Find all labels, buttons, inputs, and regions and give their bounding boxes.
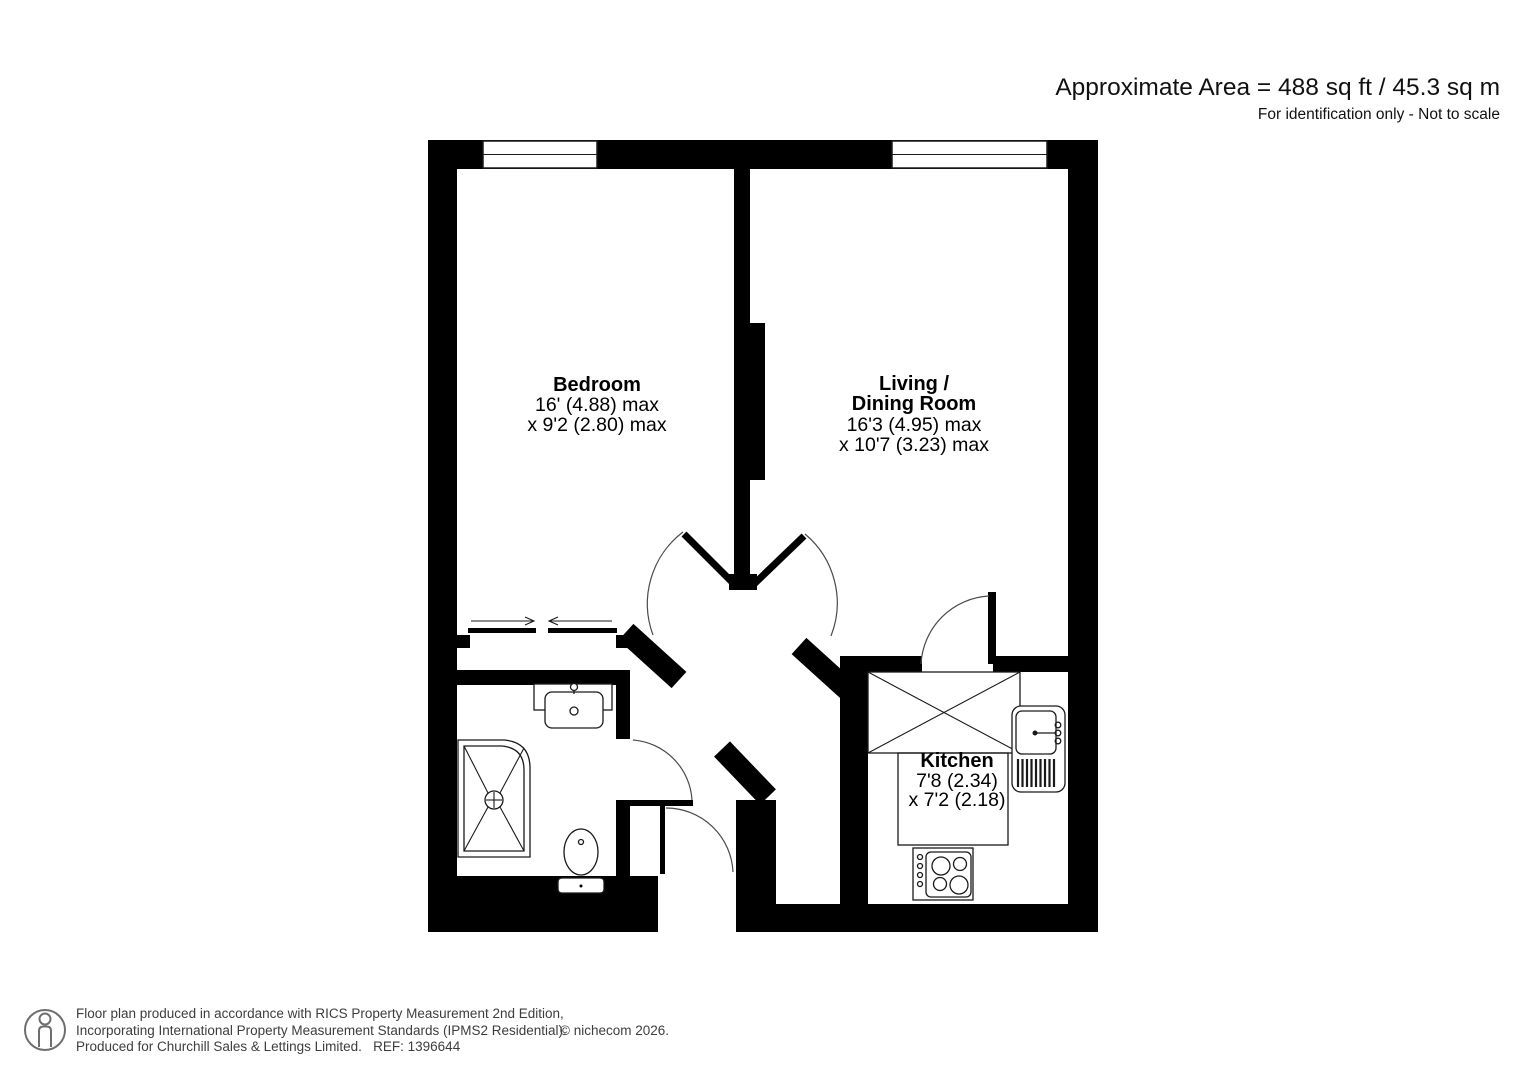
- wall-bathroom-bottom: [428, 876, 658, 932]
- bedroom-door: [647, 532, 737, 635]
- kitchen-dim-2: x 7'2 (2.18): [909, 789, 1006, 811]
- living-room-window: [892, 141, 1047, 168]
- living-label-2: Dining Room: [852, 393, 976, 415]
- wall-living-bottom-right: [993, 656, 1068, 672]
- approximate-area-text: Approximate Area = 488 sq ft / 45.3 sq m: [1055, 74, 1500, 101]
- living-label-1: Living /: [879, 373, 949, 395]
- footer-line-3: Produced for Churchill Sales & Lettings …: [76, 1039, 461, 1054]
- living-room-door: [751, 534, 837, 636]
- room-labels: Bedroom 16' (4.88) max x 9'2 (2.80) max …: [527, 373, 1005, 811]
- footer: Floor plan produced in accordance with R…: [25, 1006, 669, 1054]
- wall-bottom-right: [736, 904, 1098, 932]
- wall-bathroom-right-lower: [616, 800, 630, 877]
- living-dim-2: x 10'7 (3.23) max: [839, 434, 989, 456]
- bedroom-dim-2: x 9'2 (2.80) max: [527, 414, 666, 436]
- floorplan-drawing: Approximate Area = 488 sq ft / 45.3 sq m…: [0, 0, 1527, 1080]
- drainer-icon: [1018, 759, 1054, 787]
- living-dim-1: 16'3 (4.95) max: [847, 414, 982, 436]
- doors: [618, 532, 996, 874]
- bedroom-label: Bedroom: [553, 374, 641, 396]
- shower: [458, 740, 530, 857]
- wall-left: [428, 140, 457, 932]
- wall-right: [1068, 140, 1098, 932]
- kitchen-label: Kitchen: [920, 750, 993, 772]
- not-to-scale-text: For identification only - Not to scale: [1258, 106, 1500, 123]
- bathroom-fixtures: [458, 684, 612, 894]
- wall-bathroom-top: [428, 670, 628, 685]
- wall-bedroom-stub-left: [456, 635, 470, 648]
- floorplan-page: Approximate Area = 488 sq ft / 45.3 sq m…: [0, 0, 1527, 1080]
- sliding-door-panel-left: [468, 628, 536, 633]
- entrance-pillar: [736, 800, 776, 906]
- wall-divider-upper: [734, 140, 750, 330]
- wall-hall-diagonal-left: [626, 632, 679, 680]
- bedroom-window: [483, 141, 597, 168]
- copyright-text: © nichecom 2026.: [560, 1023, 669, 1038]
- wardrobe-sliding-doors: [468, 617, 617, 633]
- kitchen-door: [921, 592, 996, 664]
- person-icon: [25, 1010, 65, 1050]
- wall-bathroom-right-upper: [616, 670, 630, 739]
- bedroom-dim-1: 16' (4.88) max: [535, 394, 659, 416]
- footer-line-2: Incorporating International Property Mea…: [76, 1023, 567, 1038]
- toilet: [558, 829, 604, 893]
- wall-divider-wide: [734, 323, 765, 480]
- sliding-door-panel-right: [548, 628, 617, 633]
- kitchen-sink: [1012, 706, 1065, 792]
- bathroom-sink: [534, 684, 612, 729]
- bathroom-door: [618, 740, 693, 806]
- wall-entrance-diagonal: [722, 749, 768, 797]
- footer-line-1: Floor plan produced in accordance with R…: [76, 1006, 564, 1021]
- wall-divider-lower: [734, 478, 750, 580]
- hob: [913, 848, 973, 900]
- front-door: [660, 806, 733, 874]
